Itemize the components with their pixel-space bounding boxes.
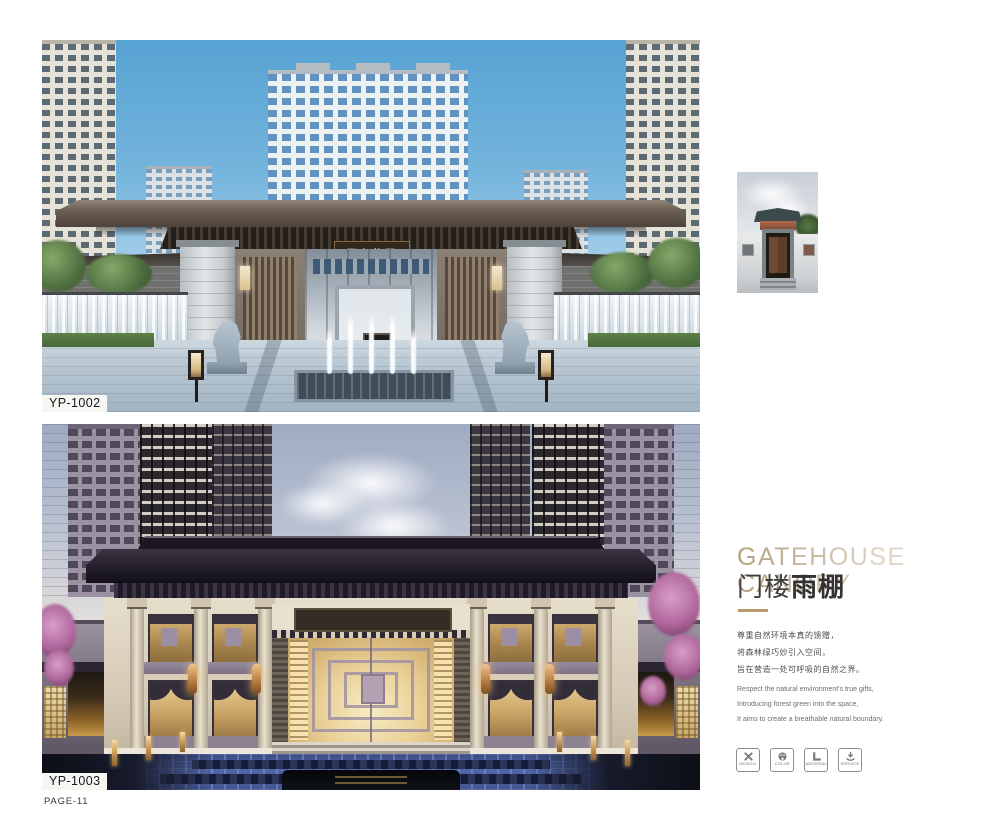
tree: [590, 252, 654, 294]
fountain-jet: [390, 312, 395, 374]
gold-lattice-right: [434, 640, 452, 740]
lower-window: [552, 680, 598, 740]
page-number: PAGE-11: [44, 796, 88, 807]
wall-lamp: [240, 266, 250, 290]
gold-bollard: [557, 732, 562, 752]
gold-bollard: [146, 736, 151, 760]
gold-bollard: [180, 732, 185, 752]
lit-side-passage: [68, 672, 104, 736]
awning-band: [144, 662, 194, 674]
fountain-jet: [348, 312, 353, 374]
roof-main-eave: [86, 549, 656, 583]
material-badge: MATERIAL: [804, 748, 828, 772]
photo-wood-doors: [769, 237, 787, 273]
render-daytime-gatehouse: 都市花园 YP-1002: [42, 40, 700, 412]
center-tower: [268, 70, 468, 214]
portal-glass-doors: [288, 638, 454, 742]
reference-photo-traditional-gate: [737, 172, 818, 293]
plaza-lantern: [538, 350, 554, 380]
tree: [648, 238, 700, 288]
lower-window: [488, 680, 534, 740]
gold-bollard: [625, 740, 630, 766]
lawn-left: [42, 333, 154, 347]
plaza-lantern: [188, 350, 204, 380]
entry-steps: [272, 742, 470, 754]
accent-divider-line: [738, 609, 768, 612]
service-badges: DESIGN COLOR MATERIAL SERVICE: [736, 748, 862, 772]
color-icon: [777, 751, 788, 762]
fountain-jet: [411, 328, 416, 374]
image-code-label: YP-1002: [42, 395, 107, 412]
bay-base: [144, 736, 194, 748]
upper-window: [552, 614, 598, 666]
color-badge: COLOR: [770, 748, 794, 772]
paving-pattern-band: [192, 760, 550, 769]
bay-base: [208, 736, 258, 748]
photo-wall-window: [803, 244, 815, 256]
section-title-zh: 门楼雨棚: [737, 567, 845, 604]
description-english: Respect the natural environment's true g…: [737, 682, 884, 727]
dark-foreground-right: [530, 754, 700, 790]
badge-label: DESIGN: [740, 762, 757, 766]
design-icon: [743, 751, 754, 762]
fountain-jet: [327, 328, 332, 374]
material-icon: [811, 751, 822, 762]
copper-lantern: [481, 664, 490, 694]
tower-cream-left: [42, 424, 68, 602]
awning-band: [208, 662, 258, 674]
roof-ridge: [138, 536, 604, 549]
corridor-clerestory: [313, 259, 429, 274]
upper-window: [212, 614, 258, 666]
copper-lantern: [545, 664, 554, 694]
door-medallion: [361, 674, 385, 704]
awning-band: [548, 662, 598, 674]
badge-label: SERVICE: [841, 762, 860, 766]
photo-gate-steps: [760, 278, 796, 290]
wall-lamp: [492, 266, 502, 290]
badge-label: MATERIAL: [805, 762, 826, 766]
gold-bollard: [591, 736, 596, 760]
copper-lantern: [188, 664, 197, 694]
fountain-pool: [294, 370, 454, 402]
portfolio-page: 都市花园 YP-1002: [0, 0, 1000, 839]
service-icon: [845, 751, 856, 762]
pilaster: [130, 598, 144, 748]
portal-sign-band: [294, 608, 452, 632]
description-chinese: 尊重自然环境本真的馈赠， 将森林绿巧妙引入空间， 旨在营造一处可呼吸的自然之界。: [737, 627, 865, 678]
lit-lattice-panel: [44, 686, 66, 738]
photo-wall-window: [742, 244, 754, 256]
design-badge: DESIGN: [736, 748, 760, 772]
upper-window: [488, 614, 534, 666]
render-dusk-gatehouse: YP-1003: [42, 424, 700, 790]
pilaster: [598, 598, 612, 748]
tree: [86, 254, 152, 294]
copper-lantern: [252, 664, 261, 694]
image-code-label: YP-1003: [42, 773, 107, 790]
gold-bollard: [112, 740, 117, 766]
awning-band: [484, 662, 534, 674]
cloud: [278, 482, 368, 526]
lawn-right: [588, 333, 700, 347]
blossom-tree: [44, 650, 74, 686]
blossom-tree: [640, 676, 666, 706]
fountain-jet: [369, 312, 374, 374]
blossom-tree: [648, 572, 700, 636]
service-badge: SERVICE: [838, 748, 862, 772]
section-title-block: GATEHOUSECANOPY 门楼雨棚: [737, 544, 937, 614]
gate-canopy-roof: [56, 200, 686, 227]
badge-label: COLOR: [774, 762, 789, 766]
bay-base: [484, 736, 534, 748]
lit-lattice-panel: [676, 686, 698, 738]
blossom-tree: [664, 634, 700, 680]
upper-window: [148, 614, 194, 666]
foreground-water-feature: [282, 770, 460, 790]
gold-lattice-left: [290, 640, 308, 740]
roof-bracket-band: [114, 583, 628, 598]
